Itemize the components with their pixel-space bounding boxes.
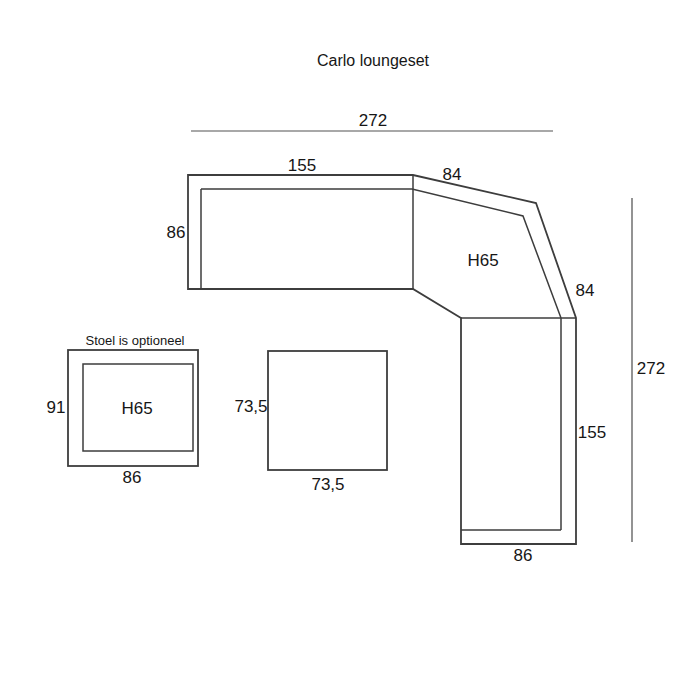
dim-overall-width-label: 272: [359, 111, 387, 130]
chair-width-label: 86: [123, 468, 142, 487]
loungeset-dimension-diagram: Carlo loungeset 272 272 155 84 86 H65 84…: [0, 0, 700, 700]
dim-bottom-depth-label: 86: [514, 546, 533, 565]
diagram-title: Carlo loungeset: [317, 52, 430, 69]
chair-depth-label: 91: [47, 398, 66, 417]
sofa-outer-contour: [188, 175, 576, 544]
dim-right-section-height-label: 155: [578, 423, 606, 442]
dim-corner-right-width-label: 84: [576, 281, 595, 300]
sofa-height-label: H65: [467, 251, 498, 270]
dim-corner-top-width-label: 84: [443, 165, 462, 184]
sofa-backrest-line: [201, 189, 561, 318]
table-depth-label: 73,5: [234, 397, 267, 416]
table-width-label: 73,5: [311, 475, 344, 494]
dim-left-depth-label: 86: [167, 223, 186, 242]
chair-note: Stoel is optioneel: [85, 333, 184, 348]
dim-overall-height-label: 272: [637, 359, 665, 378]
chair-height-label: H65: [121, 399, 152, 418]
table-rect: [268, 351, 387, 470]
diagram-canvas: Carlo loungeset 272 272 155 84 86 H65 84…: [0, 0, 700, 700]
dim-left-section-width-label: 155: [288, 156, 316, 175]
